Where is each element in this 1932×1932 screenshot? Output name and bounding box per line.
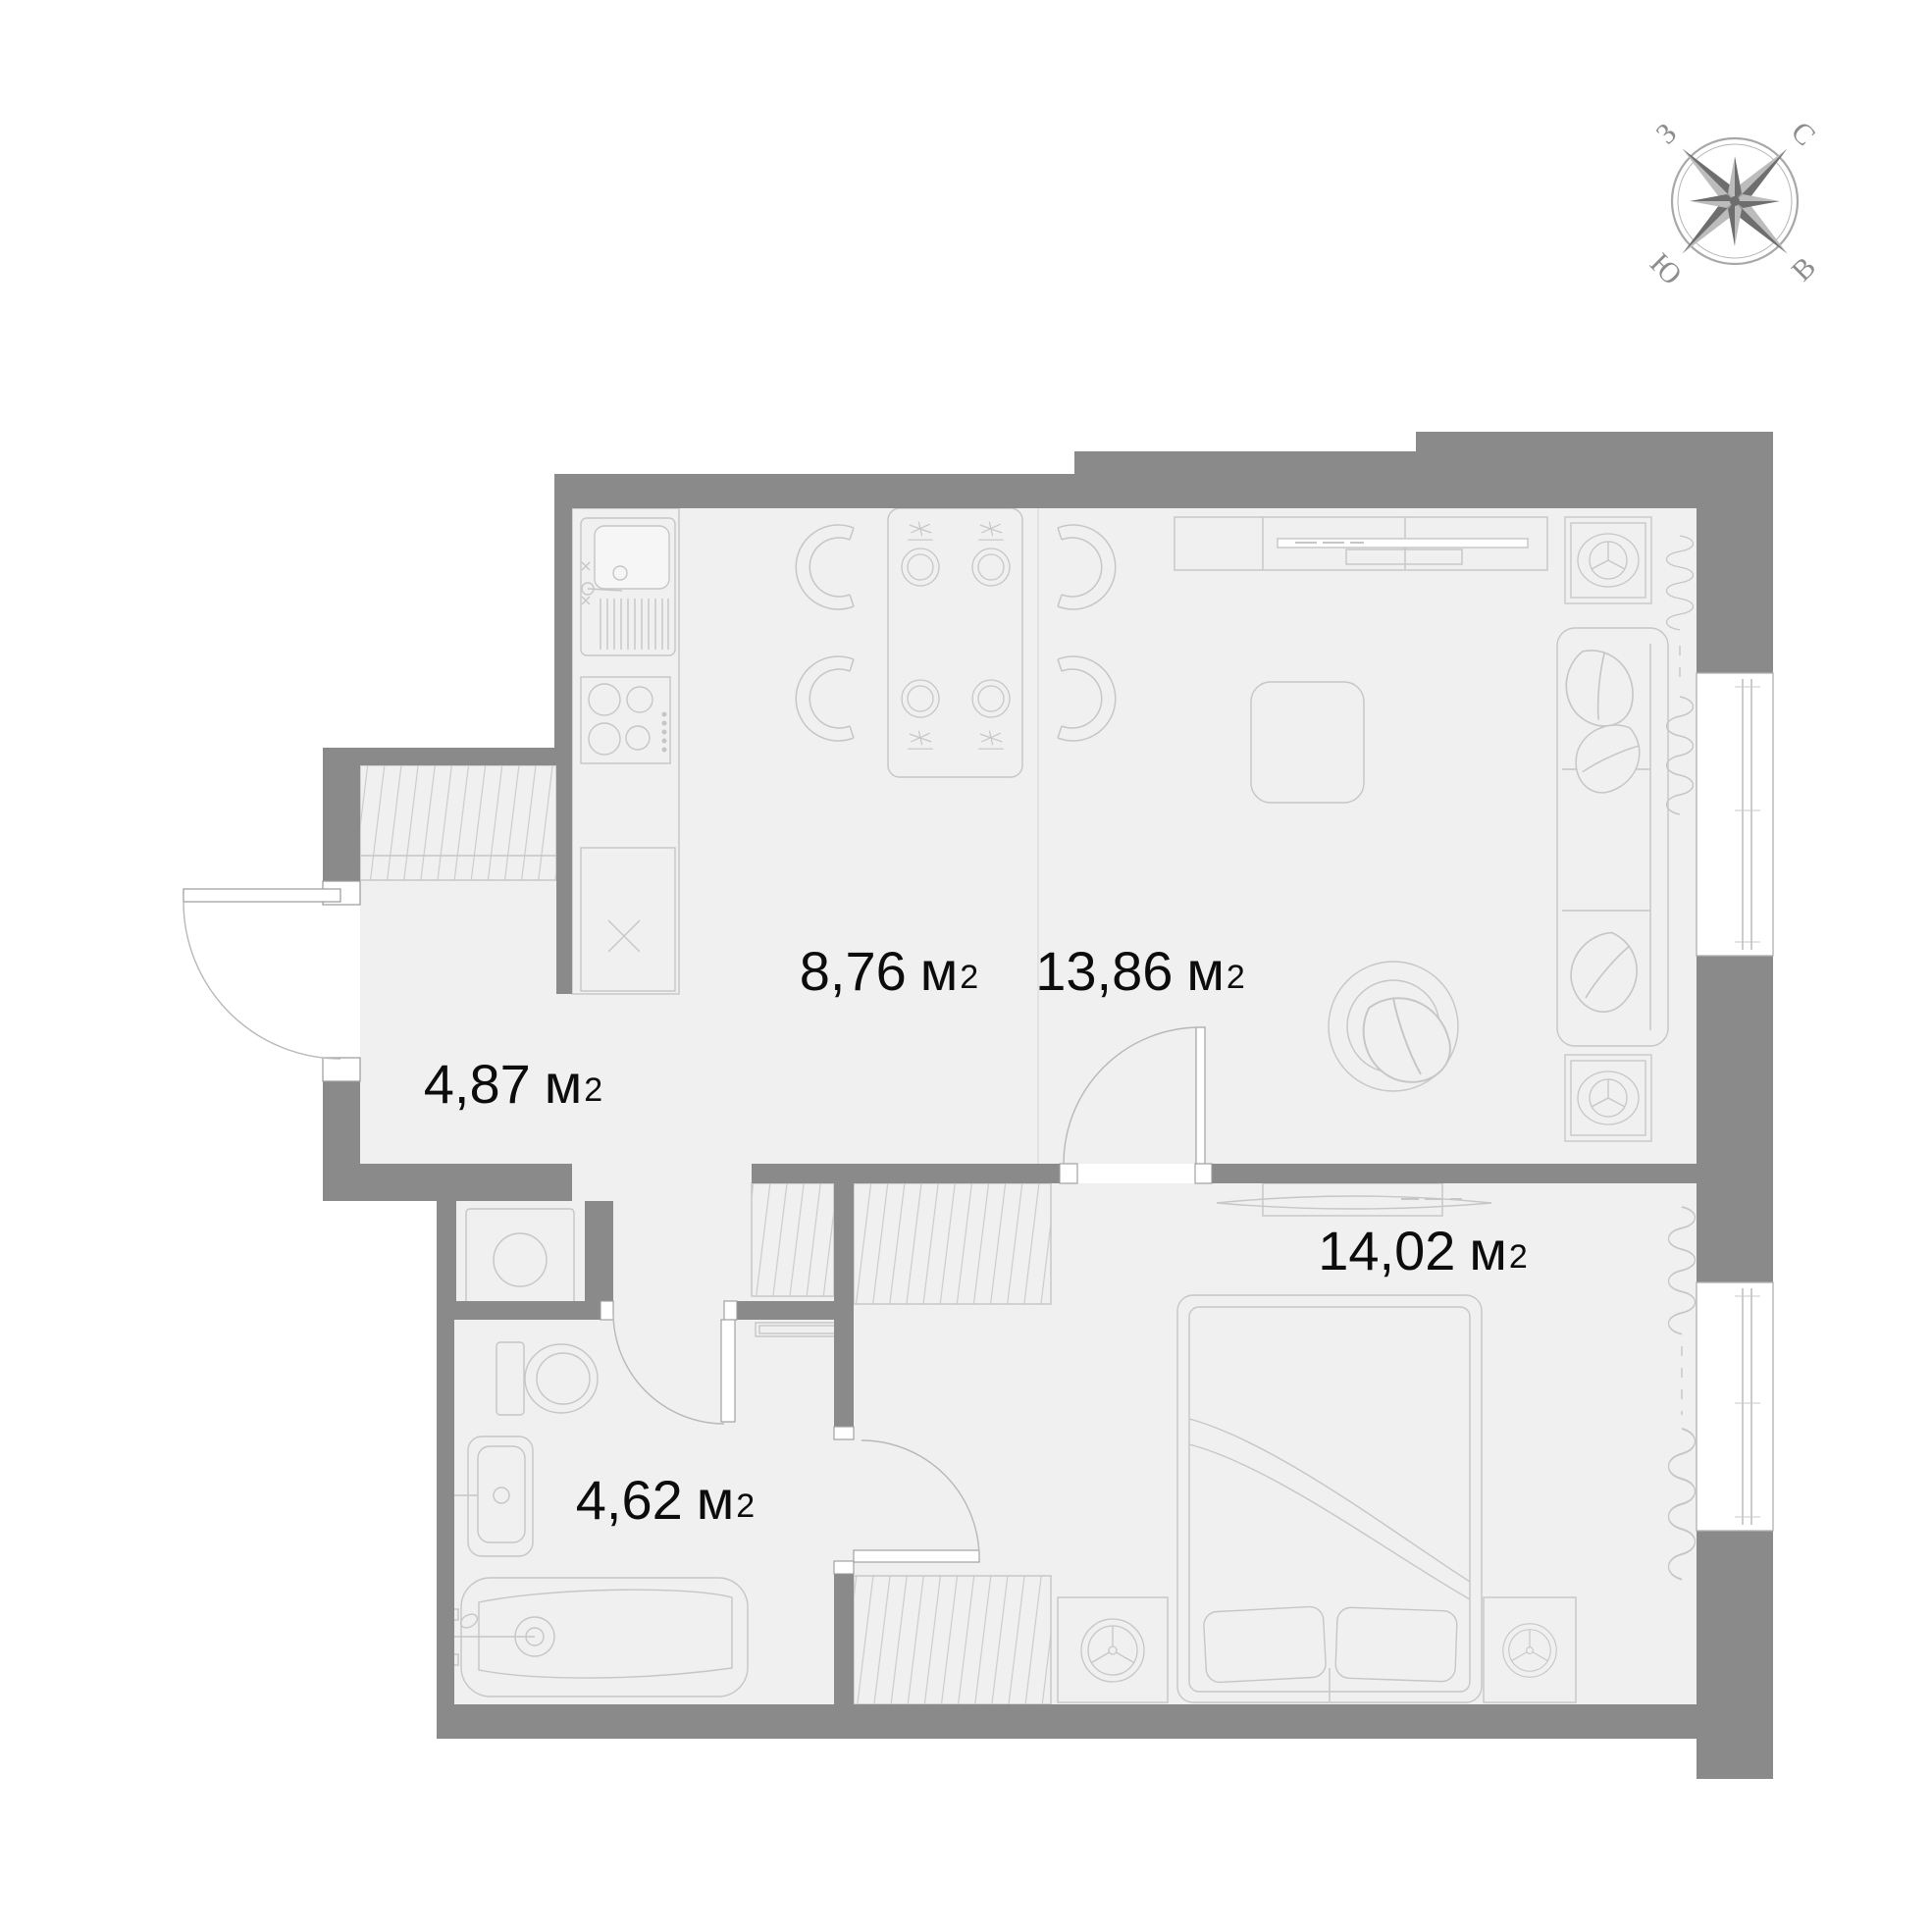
area-value: 14,02 bbox=[1318, 1219, 1455, 1282]
area-sup: 2 bbox=[584, 1071, 602, 1110]
area-sup: 2 bbox=[736, 1488, 755, 1526]
wall-top-kitchen bbox=[554, 474, 1084, 508]
wall-entry-b bbox=[323, 1079, 360, 1168]
area-unit: м bbox=[697, 1468, 735, 1532]
wall-bottom bbox=[437, 1704, 1773, 1739]
wall-right-upper bbox=[1697, 508, 1773, 673]
wall-bath-top-1 bbox=[454, 1301, 600, 1320]
area-sup: 2 bbox=[960, 959, 978, 997]
compass-rose: С З Ю В bbox=[1630, 96, 1841, 307]
area-label-bathroom: 4,62м2 bbox=[576, 1468, 755, 1532]
area-unit: м bbox=[1186, 939, 1225, 1003]
door-jamb bbox=[323, 1058, 360, 1081]
wall-divider-b bbox=[752, 1164, 1060, 1183]
area-value: 4,62 bbox=[576, 1468, 683, 1532]
closet-bedroom-bottom bbox=[854, 1576, 1051, 1704]
area-unit: м bbox=[920, 939, 959, 1003]
door-jamb bbox=[834, 1427, 854, 1439]
wall-mid-vertical-2 bbox=[834, 1562, 854, 1704]
area-unit: м bbox=[545, 1052, 583, 1116]
wall-bath-left bbox=[437, 1201, 454, 1739]
floor-kitchen-living bbox=[572, 508, 1697, 1164]
area-value: 4,87 bbox=[424, 1052, 531, 1116]
wall-top-living bbox=[1416, 432, 1773, 508]
wall-entry-a bbox=[323, 765, 360, 883]
area-label-kitchen: 8,76м2 bbox=[800, 939, 978, 1003]
door-jamb bbox=[724, 1301, 737, 1320]
wall-top-living-step bbox=[1074, 451, 1428, 508]
door-leaf bbox=[183, 889, 340, 902]
wall-niche-right bbox=[585, 1201, 613, 1315]
door-jamb bbox=[834, 1561, 854, 1574]
wall-divider-a bbox=[323, 1164, 572, 1201]
entrance-door bbox=[183, 881, 360, 1081]
door-leaf bbox=[854, 1550, 979, 1562]
wall-mid-vertical-1 bbox=[834, 1183, 854, 1438]
area-unit: м bbox=[1469, 1219, 1507, 1282]
door-jamb bbox=[1195, 1164, 1212, 1183]
door-swing-arc bbox=[183, 902, 340, 1059]
floor-washer-niche bbox=[456, 1201, 585, 1315]
area-value: 13,86 bbox=[1035, 939, 1173, 1003]
area-sup: 2 bbox=[1509, 1238, 1528, 1277]
door-jamb bbox=[1060, 1164, 1077, 1183]
wall-right-middle bbox=[1697, 956, 1773, 1282]
window-living bbox=[1697, 673, 1773, 956]
wall-left-upper bbox=[554, 474, 572, 765]
compass-north-label: С bbox=[1785, 116, 1821, 152]
area-value: 8,76 bbox=[800, 939, 907, 1003]
wall-wardrobe-right bbox=[556, 765, 572, 994]
area-sup: 2 bbox=[1227, 959, 1245, 997]
door-leaf bbox=[721, 1320, 735, 1422]
door-jamb bbox=[600, 1301, 613, 1320]
compass-east-label: В bbox=[1786, 251, 1822, 287]
area-label-bedroom: 14,02м2 bbox=[1318, 1219, 1528, 1282]
wall-wardrobe-top bbox=[323, 748, 572, 765]
wall-bath-top-2 bbox=[737, 1301, 834, 1320]
compass-west-label: З bbox=[1649, 117, 1683, 150]
area-label-entry-hall: 4,87м2 bbox=[424, 1052, 602, 1116]
wall-right-lower bbox=[1697, 1531, 1773, 1779]
closet-bedroom-top bbox=[854, 1183, 1051, 1304]
wall-divider-c bbox=[1212, 1164, 1697, 1183]
floorplan-page: С З Ю В 4,87м2 8,76м2 13,86м2 14,02м2 4,… bbox=[0, 0, 1932, 1932]
entry-wardrobe bbox=[360, 765, 556, 880]
window-bedroom bbox=[1697, 1282, 1773, 1531]
door-leaf bbox=[1196, 1027, 1205, 1164]
speaker-box bbox=[1565, 517, 1651, 603]
area-label-living: 13,86м2 bbox=[1035, 939, 1245, 1003]
closet-hall bbox=[752, 1183, 834, 1296]
compass-south-label: Ю bbox=[1644, 247, 1688, 291]
speaker-box bbox=[1565, 1055, 1651, 1141]
